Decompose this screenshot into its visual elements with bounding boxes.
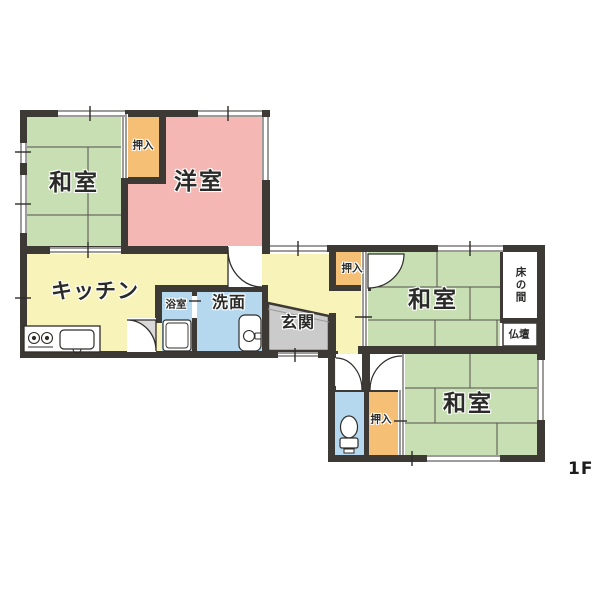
window-nw-top: [58, 110, 125, 117]
entry-door: [278, 352, 318, 358]
washbasin-icon: [239, 315, 261, 351]
window-se-right: [537, 360, 545, 420]
floor-plan: 和室 押入 洋室 キッチン 浴室 洗面 玄関 押入 和室 床の間 仏壇 押入 和…: [0, 0, 610, 610]
tatami-room-se-floor: [405, 354, 537, 455]
toilet-icon: [340, 416, 358, 453]
sliding-door-mid: [361, 252, 368, 346]
kitchen-counter: [24, 326, 100, 353]
window-west-room-right: [262, 117, 270, 180]
floor-plan-drawing: [0, 0, 610, 610]
window-se-bottom: [427, 455, 500, 462]
window-left-1: [20, 143, 27, 163]
tokonoma-floor: [503, 252, 537, 318]
door-bathroom: [127, 318, 156, 352]
door-hall-right: [370, 354, 402, 390]
kitchen-sink-icon: [60, 330, 94, 353]
bathtub-icon: [163, 320, 191, 351]
closet-nw-floor: [128, 117, 159, 177]
door-west-room: [228, 246, 262, 287]
butsudan-floor: [503, 323, 537, 346]
bath-door-gap: [192, 296, 197, 318]
door-hall-left: [336, 354, 362, 390]
sliding-door-nw: [121, 114, 128, 178]
closet-s-floor: [368, 392, 398, 455]
tatami-room-nw-floor: [27, 117, 121, 246]
room-fills: [24, 114, 537, 455]
sliding-door-kitchen: [50, 247, 121, 254]
window-west-room-top: [198, 110, 262, 117]
